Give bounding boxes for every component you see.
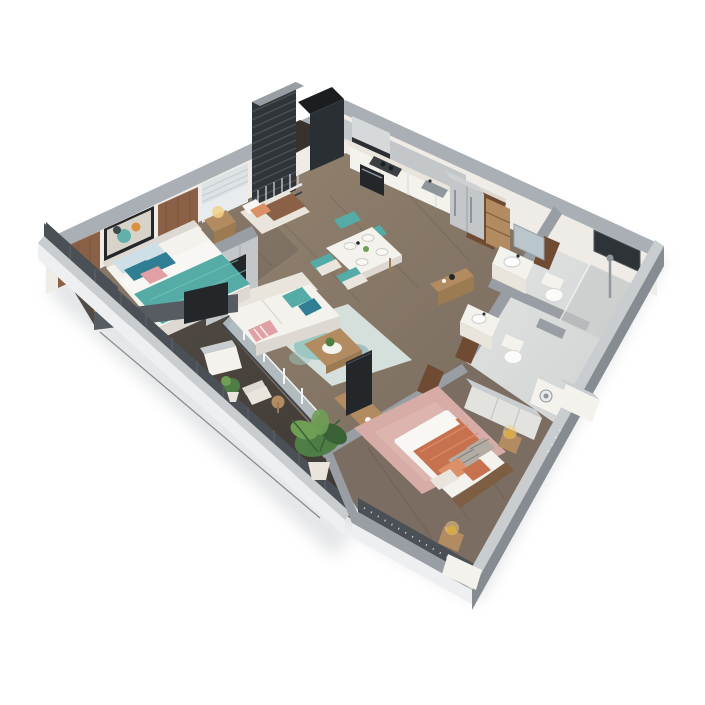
- toilet1-bowl: [545, 289, 563, 302]
- apartment-render-svg: [0, 0, 705, 705]
- small-plant-highlight: [221, 376, 231, 386]
- vanity2-tap: [483, 313, 486, 316]
- console-decor-dark: [449, 274, 455, 280]
- centerpiece: [363, 246, 369, 252]
- console-decor-light: [442, 279, 446, 283]
- floor-plan-render: [0, 0, 705, 705]
- cooktop-burner-2: [389, 166, 394, 171]
- shower-head: [607, 255, 614, 262]
- plate-3: [356, 259, 368, 266]
- sink-faucet: [428, 179, 431, 182]
- cooktop-burner-1: [381, 162, 386, 167]
- art-dark-circle: [113, 226, 121, 234]
- vanity2-sink: [472, 315, 486, 324]
- large-plant-leaves-4: [311, 409, 329, 435]
- art-orange-circle: [132, 223, 141, 232]
- toilet2-bowl: [504, 351, 522, 364]
- gold-lamp-sw: [448, 526, 457, 535]
- table-plant: [326, 338, 335, 347]
- gold-lamp-ne: [506, 430, 515, 439]
- table-lamp-right: [212, 206, 224, 218]
- vanity1-tap: [516, 254, 519, 257]
- bottle: [356, 241, 360, 245]
- vanity1-sink: [504, 257, 520, 267]
- plate-4: [376, 249, 388, 256]
- plate-2: [362, 235, 374, 242]
- rug-light-blob: [289, 351, 311, 365]
- washer-door-center: [544, 394, 549, 399]
- plate-1: [344, 243, 356, 250]
